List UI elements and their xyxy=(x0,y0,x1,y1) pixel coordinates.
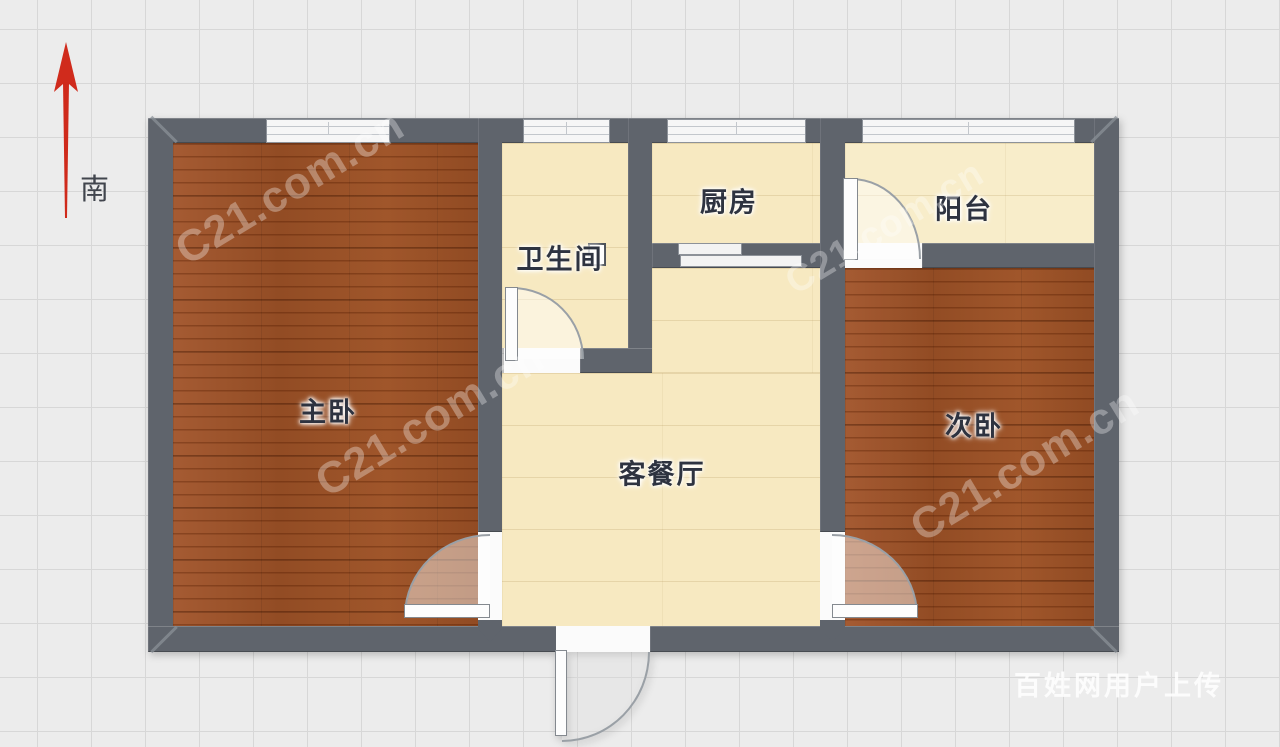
balcony-door-leaf xyxy=(843,178,858,260)
living-floor-main xyxy=(502,373,820,626)
wall-balcony-bottom xyxy=(922,243,1094,268)
window-kitchen xyxy=(667,119,806,143)
entry-door-swing xyxy=(562,652,650,742)
wall-bottom-right xyxy=(650,626,1119,652)
second-door-leaf xyxy=(832,604,918,618)
bathroom-door-leaf xyxy=(505,287,518,361)
wall-master-living xyxy=(478,118,502,532)
label-bathroom: 卫生间 xyxy=(517,238,604,277)
wall-right xyxy=(1094,118,1119,652)
wall-living-second xyxy=(820,118,845,532)
entry-door-leaf xyxy=(555,650,567,736)
wall-bath-kitchen xyxy=(628,118,652,373)
living-floor-upper xyxy=(652,268,820,373)
window-master-bedroom xyxy=(266,119,390,143)
master-door-leaf xyxy=(404,604,490,618)
label-living-dining: 客餐厅 xyxy=(619,453,706,492)
label-second-bedroom: 次卧 xyxy=(945,405,1003,444)
entry-doorway xyxy=(556,626,650,652)
floorplan-page: 南 xyxy=(0,0,1280,747)
wall-bath-bottom xyxy=(580,348,652,373)
sliding-door-panel-lower xyxy=(680,255,802,267)
sliding-door-panel-upper xyxy=(678,243,742,255)
window-bathroom xyxy=(523,119,610,143)
label-master-bedroom: 主卧 xyxy=(299,391,357,430)
label-kitchen: 厨房 xyxy=(700,181,758,220)
uploader-watermark: 百姓网用户上传 xyxy=(1014,664,1224,703)
wall-left xyxy=(148,118,173,652)
window-balcony xyxy=(862,119,1075,143)
label-balcony: 阳台 xyxy=(935,188,993,227)
floorplan: 主卧 卫生间 厨房 阳台 客餐厅 次卧 xyxy=(0,0,1280,747)
